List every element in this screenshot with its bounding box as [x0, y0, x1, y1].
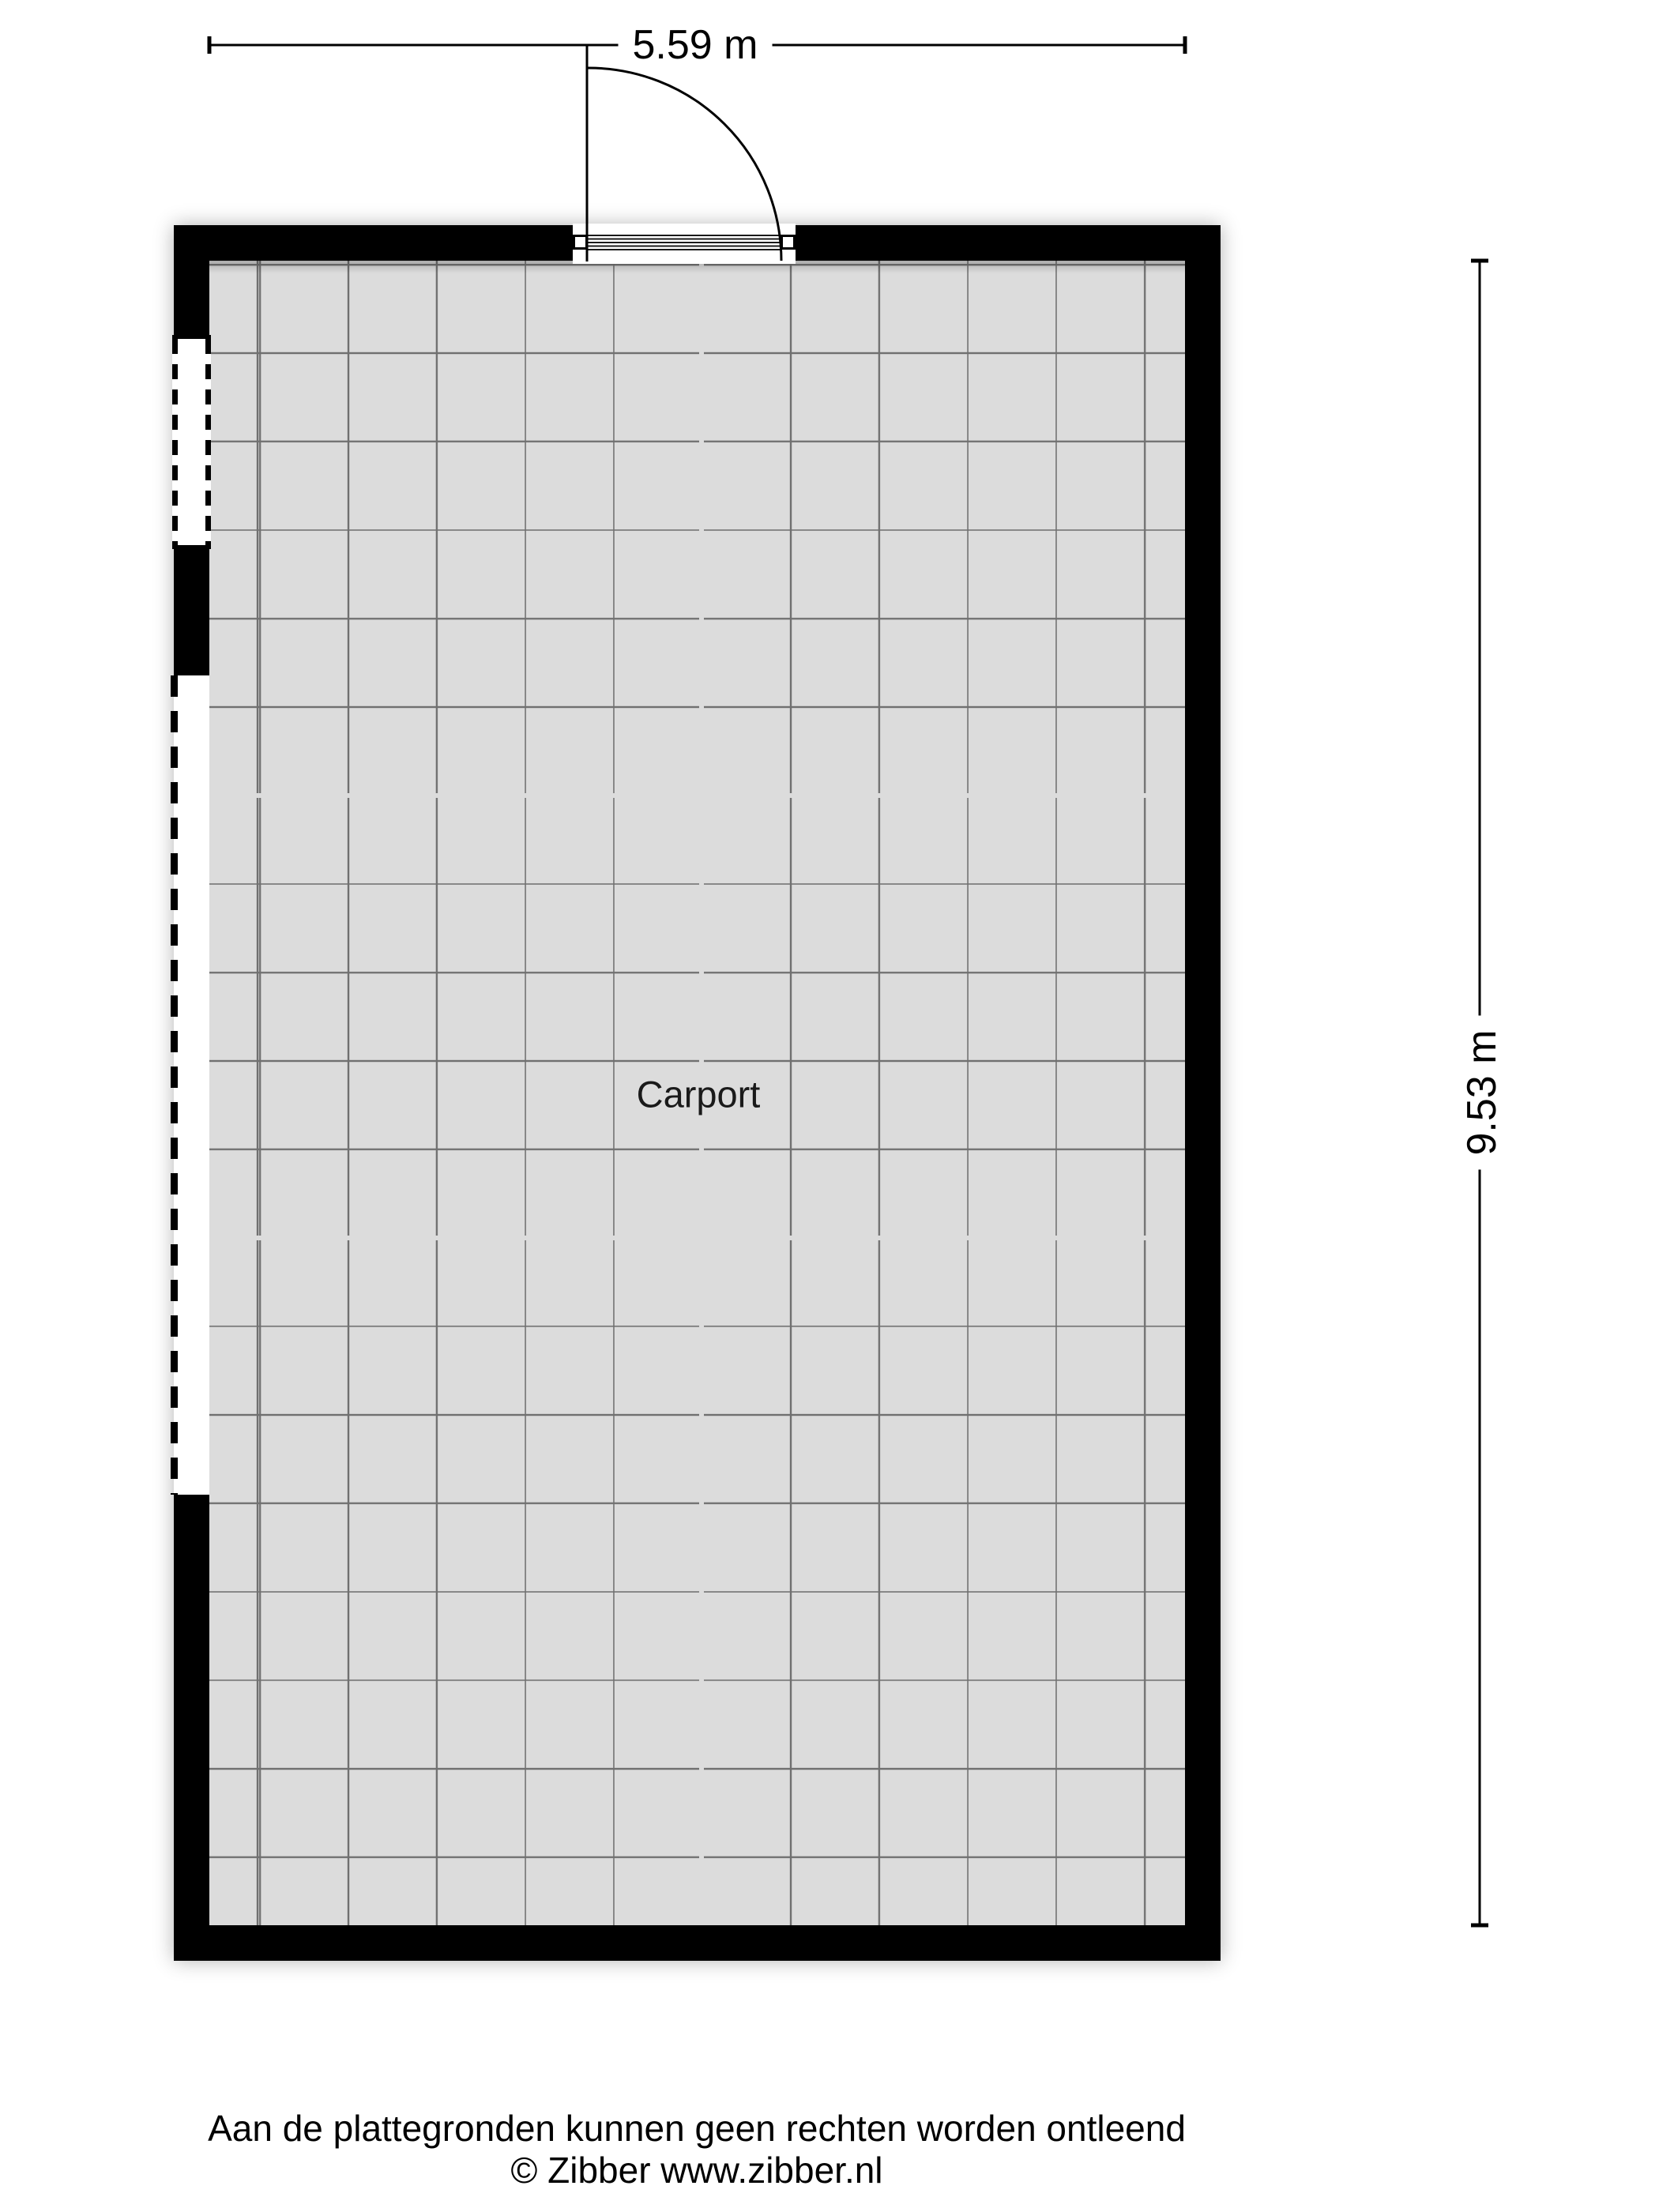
door-threshold	[588, 235, 781, 250]
wall-top-left-segment	[174, 225, 573, 261]
disclaimer-text: Aan de plattegronden kunnen geen rechten…	[208, 2108, 1186, 2150]
window-opening	[172, 335, 211, 549]
wall-left-upper-segment	[174, 225, 209, 337]
grid-line-mask	[209, 793, 1185, 798]
grid-line-mask	[209, 1236, 1185, 1240]
dimension-right-label: 9.53 m	[1458, 1016, 1506, 1170]
wall-top-right-segment	[796, 225, 1221, 261]
wall-right	[1185, 225, 1221, 1961]
door-post-left	[573, 235, 588, 250]
room-label: Carport	[637, 1073, 761, 1116]
window-dash-inner	[205, 339, 211, 545]
footer: Aan de plattegronden kunnen geen rechten…	[208, 2108, 1186, 2191]
door-post-right	[781, 235, 796, 250]
wall-left-lower-segment	[174, 1495, 209, 1961]
floorplan-sheet: 5.59 m 9.53 m Carport Aan de plattegrond…	[0, 0, 1659, 2212]
wall-left-middle-segment	[174, 547, 209, 675]
open-side-dashed-line	[171, 675, 178, 1495]
window-dash-outer	[172, 339, 178, 545]
dimension-top-label: 5.59 m	[619, 21, 773, 69]
wall-bottom	[174, 1925, 1221, 1961]
copyright-text: © Zibber www.zibber.nl	[208, 2150, 1186, 2191]
